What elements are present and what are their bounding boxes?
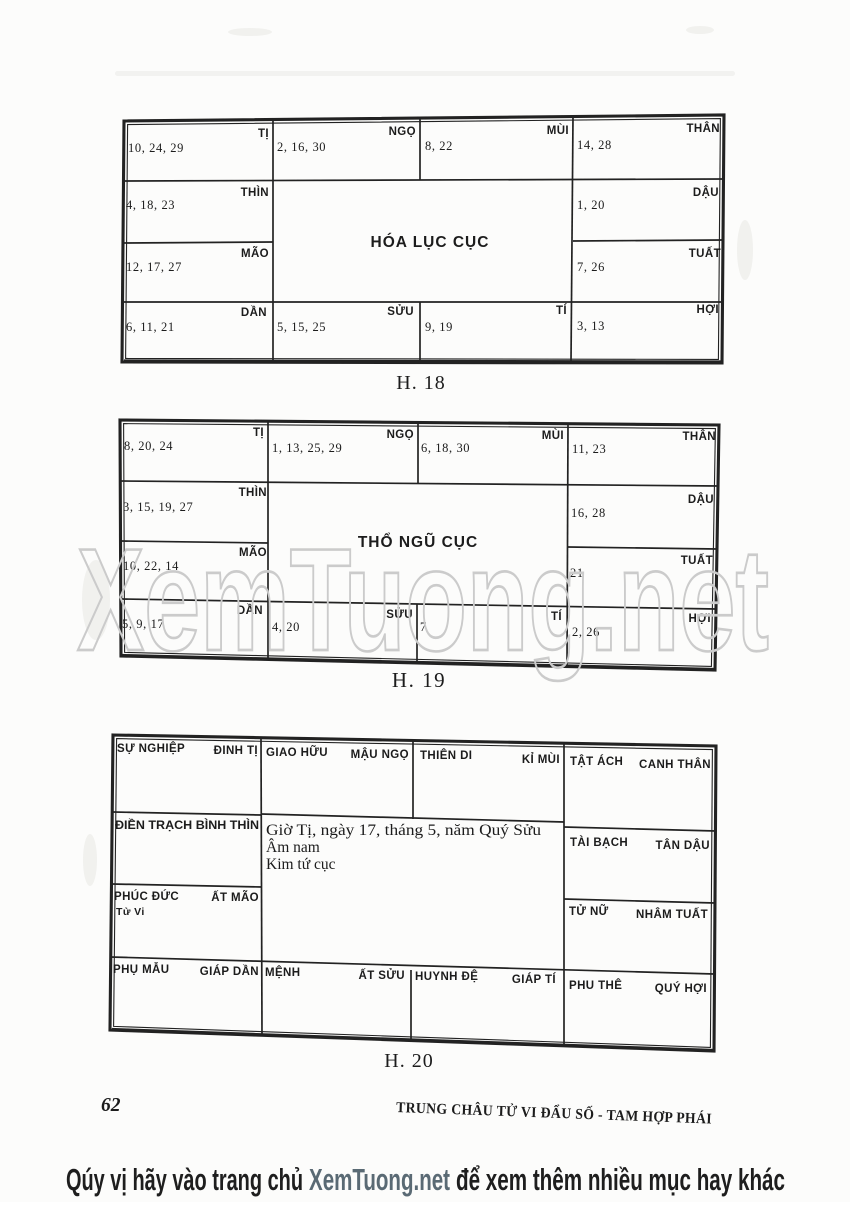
svg-text:NGỌ: NGỌ <box>389 126 416 138</box>
svg-text:THÌN: THÌN <box>239 486 267 499</box>
svg-text:DẦN: DẦN <box>241 306 267 319</box>
svg-text:THÂN: THÂN <box>686 122 720 135</box>
svg-text:HUYNH ĐỆ: HUYNH ĐỆ <box>415 970 478 983</box>
svg-text:CANH THÂN: CANH THÂN <box>639 758 711 771</box>
svg-text:14, 28: 14, 28 <box>577 138 612 152</box>
svg-text:12, 17, 27: 12, 17, 27 <box>126 260 182 274</box>
svg-text:8, 22: 8, 22 <box>425 139 453 153</box>
svg-text:SỰ NGHIỆP: SỰ NGHIỆP <box>117 742 185 755</box>
svg-text:GIÁP DẦN: GIÁP DẦN <box>200 965 259 978</box>
svg-text:6, 18, 30: 6, 18, 30 <box>421 441 470 455</box>
svg-text:XemTuong.net: XemTuong.net <box>77 518 769 681</box>
svg-text:62: 62 <box>101 1095 121 1116</box>
svg-text:8, 20, 24: 8, 20, 24 <box>124 439 173 453</box>
svg-text:MÙI: MÙI <box>547 124 569 137</box>
svg-text:PHÚC ĐỨC: PHÚC ĐỨC <box>114 890 179 903</box>
svg-text:1, 20: 1, 20 <box>577 198 605 212</box>
svg-text:MẬU NGỌ: MẬU NGỌ <box>351 748 409 761</box>
svg-text:MÙI: MÙI <box>542 429 564 442</box>
svg-text:Âm nam: Âm nam <box>266 839 320 856</box>
svg-text:7, 26: 7, 26 <box>577 260 605 274</box>
svg-text:PHỤ MẪU: PHỤ MẪU <box>113 963 169 976</box>
svg-text:THÂN: THÂN <box>682 430 716 443</box>
svg-text:TÀI BẠCH: TÀI BẠCH <box>570 836 628 849</box>
svg-text:NHÂM TUẤT: NHÂM TUẤT <box>636 908 708 921</box>
svg-text:MỆNH: MỆNH <box>265 966 300 979</box>
svg-text:Giờ Tị, ngày 17, tháng 5, năm: Giờ Tị, ngày 17, tháng 5, năm Quý Sửu <box>266 822 541 839</box>
svg-text:HỢI: HỢI <box>696 304 719 316</box>
svg-text:PHU THÊ: PHU THÊ <box>569 979 622 992</box>
svg-text:6, 11, 21: 6, 11, 21 <box>126 320 175 334</box>
svg-text:1, 13, 25, 29: 1, 13, 25, 29 <box>272 441 342 455</box>
svg-text:TỊ: TỊ <box>253 427 264 439</box>
svg-text:DẬU: DẬU <box>693 186 719 199</box>
svg-text:GIAO HỮU: GIAO HỮU <box>266 746 328 759</box>
svg-text:TUẤT: TUẤT <box>689 247 721 260</box>
svg-text:GIÁP TÍ: GIÁP TÍ <box>512 973 557 986</box>
svg-text:Kim tứ cục: Kim tứ cục <box>266 856 336 873</box>
svg-text:4, 18, 23: 4, 18, 23 <box>126 198 175 212</box>
svg-text:Tử Vi: Tử Vi <box>116 906 145 918</box>
svg-text:2, 16, 30: 2, 16, 30 <box>277 140 326 154</box>
svg-text:THÌN: THÌN <box>241 186 269 199</box>
svg-text:Qúy vị hãy vào trang chủ: Qúy vị hãy vào trang chủ <box>66 1162 303 1197</box>
svg-text:H. 20: H. 20 <box>384 1050 433 1072</box>
svg-text:H. 18: H. 18 <box>396 372 445 394</box>
svg-text:9, 19: 9, 19 <box>425 320 453 334</box>
svg-text:HÓA LỤC CỤC: HÓA LỤC CỤC <box>371 233 490 251</box>
svg-text:QUÝ HỢI: QUÝ HỢI <box>655 982 707 995</box>
svg-text:XemTuong.net: XemTuong.net <box>309 1162 450 1197</box>
svg-text:11, 23: 11, 23 <box>572 442 606 456</box>
svg-text:TÂN DẬU: TÂN DẬU <box>655 839 710 852</box>
svg-text:DẬU: DẬU <box>688 493 714 506</box>
svg-text:KỈ MÙI: KỈ MÙI <box>522 753 560 766</box>
svg-text:10, 24, 29: 10, 24, 29 <box>128 141 184 155</box>
svg-text:3, 13: 3, 13 <box>577 319 605 333</box>
svg-text:TÍ: TÍ <box>556 304 567 317</box>
svg-text:TỊ: TỊ <box>258 128 269 140</box>
svg-text:ẤT MÃO: ẤT MÃO <box>211 891 259 904</box>
svg-text:ẤT SỬU: ẤT SỬU <box>359 969 405 982</box>
svg-text:3, 15, 19, 27: 3, 15, 19, 27 <box>123 500 193 514</box>
svg-text:5, 15, 25: 5, 15, 25 <box>277 320 326 334</box>
svg-text:THIÊN DI: THIÊN DI <box>420 749 472 762</box>
svg-text:MÃO: MÃO <box>241 247 269 260</box>
svg-text:NGỌ: NGỌ <box>387 429 414 441</box>
svg-text:TẬT ÁCH: TẬT ÁCH <box>570 755 623 768</box>
svg-text:SỬU: SỬU <box>387 305 414 318</box>
svg-text:ĐINH TỊ: ĐINH TỊ <box>214 745 258 757</box>
svg-text:TỬ NỮ: TỬ NỮ <box>569 905 609 918</box>
svg-text:ĐIỀN TRẠCH BÌNH THÌN: ĐIỀN TRẠCH BÌNH THÌN <box>115 819 259 832</box>
svg-text:để xem thêm nhiều mục hay khác: để xem thêm nhiều mục hay khác <box>456 1162 785 1197</box>
